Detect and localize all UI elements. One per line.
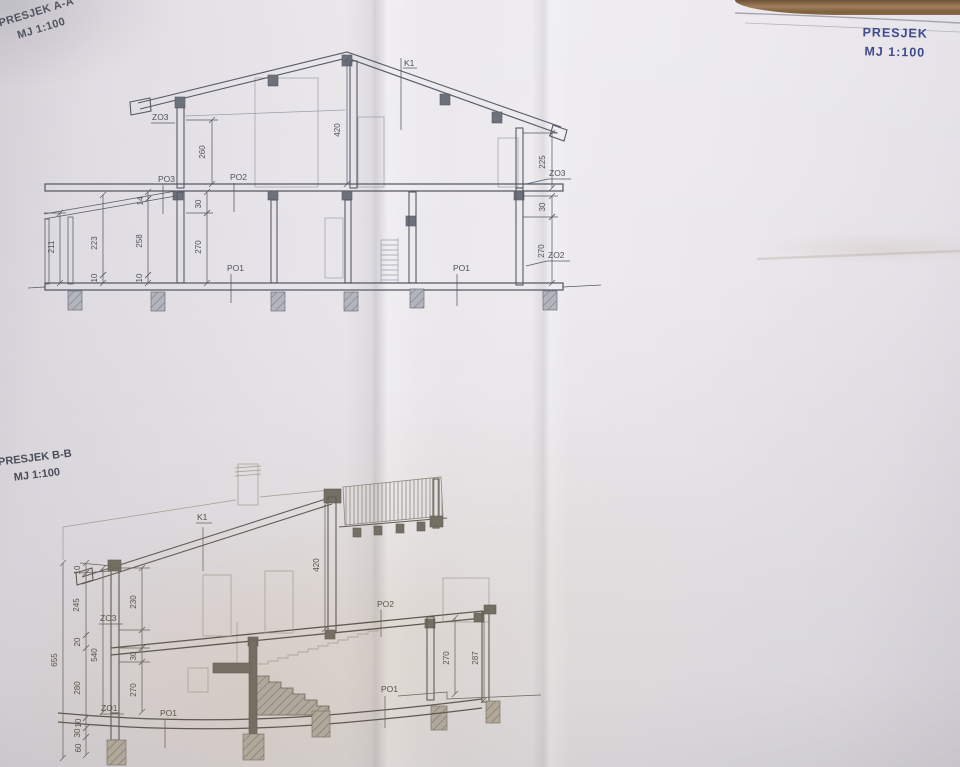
dim-label: 270 [129, 683, 138, 697]
bb-purlin-2 [374, 526, 382, 535]
mark-label: PO1 [227, 263, 244, 273]
dim-label: 14 [136, 196, 145, 205]
mark-label: ZO3 [100, 613, 117, 623]
bb-door-upper-2 [265, 571, 293, 633]
photographed-drawing-sheet: 260 420 225 30 270 14 258 10 223 10 211 … [0, 0, 960, 767]
aa-footing-3 [271, 292, 285, 311]
aa-slab-upper [45, 184, 563, 191]
aa-purlin-right1 [440, 94, 450, 105]
aa-column1 [271, 200, 277, 283]
bb-upper-flight [258, 628, 378, 664]
dim-label: 30 [73, 728, 82, 737]
aa-footing-2 [151, 292, 165, 311]
mark-label: PO1 [160, 708, 177, 718]
mark-label: ZO2 [548, 250, 565, 260]
bb-purlin-3 [396, 524, 404, 533]
aa-stairs [381, 238, 398, 283]
aa-wall-mid-upper [350, 61, 357, 188]
dim-label: 211 [47, 240, 56, 253]
aa-wall-right-lower [516, 188, 523, 285]
dim-label: 420 [312, 558, 321, 572]
dim-label: 10 [135, 273, 144, 282]
aa-door-lower [325, 218, 343, 278]
aa-porch-roof [44, 191, 176, 219]
bb-roof-cap [324, 489, 341, 503]
dim-label: 10 [73, 565, 82, 574]
bb-lower-flight [257, 676, 329, 715]
aa-door-upper-mid [358, 117, 384, 187]
aa-lintel [406, 216, 416, 226]
mark-label: K1 [197, 512, 208, 522]
dim-label: 230 [129, 595, 138, 609]
mark-label: PO1 [381, 684, 398, 694]
bb-footing-stair [243, 734, 264, 760]
dim-label: 540 [90, 648, 99, 662]
bb-niche [188, 668, 208, 692]
aa-slab-ground [45, 283, 563, 290]
bb-terrace-col-1 [427, 617, 434, 700]
aa-wall-stair [409, 192, 416, 283]
bb-purlin-1 [353, 528, 361, 537]
aa-ceiling-line [185, 110, 345, 116]
dim-label: 223 [90, 236, 99, 250]
mark-label: ZO1 [101, 703, 118, 713]
dim-label: 270 [537, 244, 546, 258]
bb-background-outline [63, 490, 330, 560]
right-sheet-header: PRESJEK MJ 1:100 [840, 23, 951, 64]
aa-porch-post-inner [68, 217, 73, 284]
bb-pergola-base [430, 516, 443, 527]
mark-label: PO2 [377, 599, 394, 609]
aa-beam3 [342, 191, 352, 200]
aa-footing-5 [410, 289, 424, 308]
mark-label: K1 [404, 58, 415, 68]
dim-label: 655 [50, 653, 59, 667]
dim-label: 10 [90, 273, 99, 282]
aa-door-upper-right [498, 138, 518, 187]
section-bb-drawing: 10 245 20 280 10 30 60 655 540 230 30 27… [50, 464, 541, 765]
aa-wall-left-lower [177, 192, 184, 283]
dim-label: 10 [74, 718, 83, 727]
dim-label: 287 [471, 651, 480, 665]
mark-label: PO3 [158, 174, 175, 184]
mark-label: ZO3 [549, 168, 566, 178]
dim-label: 270 [442, 651, 451, 665]
right-sheet-title: PRESJEK [840, 23, 950, 45]
aa-terrain [28, 285, 601, 288]
bb-footing-r1 [431, 706, 447, 730]
dim-label: 30 [129, 651, 138, 660]
dim-label: 225 [538, 155, 547, 169]
dim-label: 420 [333, 123, 342, 137]
sections-linework: 260 420 225 30 270 14 258 10 223 10 211 … [0, 0, 960, 767]
dim-label: 30 [538, 202, 547, 211]
bb-wall-high [328, 497, 336, 632]
bb-pergola-hatch [343, 477, 443, 525]
bb-door-upper-1 [203, 575, 231, 636]
aa-purlin-right2 [492, 112, 502, 123]
aa-footing-4 [344, 292, 358, 311]
aa-wall-left-upper [177, 106, 184, 188]
bb-footing-mid [312, 711, 330, 737]
dim-label: 270 [194, 240, 203, 254]
dim-label: 260 [198, 145, 207, 159]
mark-label: PO2 [230, 172, 247, 182]
aa-wall-right-upper [516, 128, 523, 188]
aa-beam2 [268, 191, 278, 200]
page-top-edge [735, 13, 960, 23]
bb-footing-left [107, 740, 126, 765]
bb-stair-wall [249, 640, 257, 734]
right-sheet-scale: MJ 1:100 [840, 42, 950, 64]
bb-wall-left [111, 567, 119, 713]
section-aa-drawing: 260 420 225 30 270 14 258 10 223 10 211 … [28, 52, 601, 311]
aa-purlin-left [268, 75, 278, 86]
aa-wallhead-left [175, 97, 185, 108]
aa-footing-1 [68, 291, 82, 310]
aa-extension-lines [44, 120, 558, 217]
dim-label: 258 [135, 234, 144, 248]
bb-terrace-col-2 [482, 612, 489, 702]
aa-opening-outline [255, 78, 318, 187]
dim-label: 20 [73, 637, 82, 646]
dim-label: 280 [73, 681, 82, 695]
aa-wall-mid-lower [345, 200, 351, 283]
bb-terrain-right [398, 692, 541, 699]
mark-label: ZO3 [152, 112, 169, 122]
bb-purlin-4 [417, 522, 425, 531]
bb-terrace-cap [484, 605, 496, 614]
dim-label: 60 [74, 743, 83, 752]
bb-footing-r2 [486, 701, 500, 723]
mark-label: PO1 [453, 263, 470, 273]
aa-footing-6 [543, 291, 557, 310]
dim-label: 245 [72, 598, 81, 612]
dim-label: 30 [194, 199, 203, 208]
underlying-page-edge [757, 251, 960, 259]
bb-beam-2 [325, 630, 335, 639]
bb-chimney-cap [235, 466, 261, 476]
bb-landing [213, 663, 251, 673]
